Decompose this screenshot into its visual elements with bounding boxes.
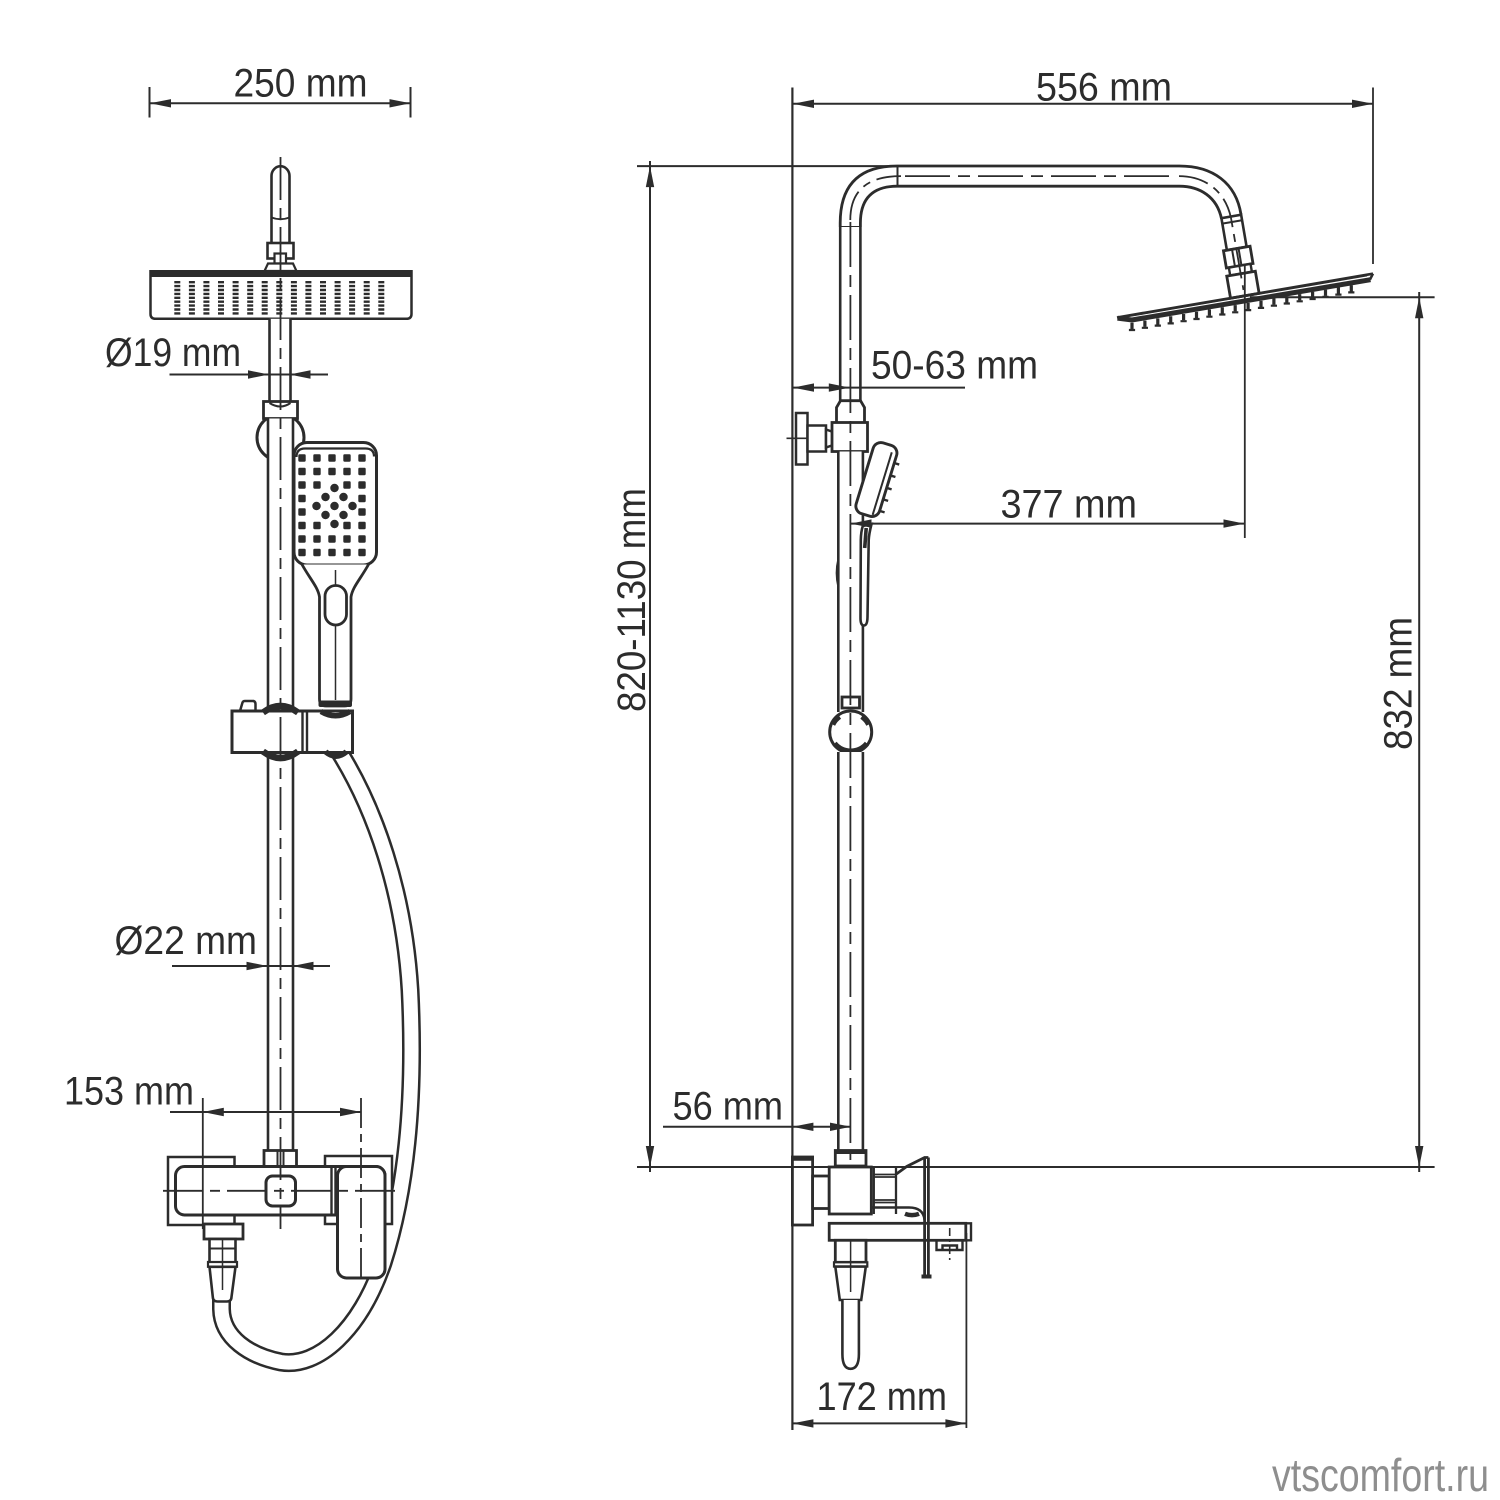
svg-text:250 mm: 250 mm	[234, 62, 368, 106]
svg-text:172 mm: 172 mm	[817, 1375, 948, 1419]
svg-text:377 mm: 377 mm	[1001, 483, 1138, 527]
svg-text:556 mm: 556 mm	[1036, 66, 1172, 110]
svg-text:Ø19 mm: Ø19 mm	[105, 331, 241, 375]
svg-text:vtscomfort.ru: vtscomfort.ru	[1272, 1449, 1489, 1500]
svg-text:56 mm: 56 mm	[673, 1085, 784, 1129]
svg-text:832 mm: 832 mm	[1377, 617, 1421, 750]
svg-text:153 mm: 153 mm	[64, 1070, 194, 1114]
svg-text:50-63 mm: 50-63 mm	[871, 344, 1038, 388]
svg-text:Ø22 mm: Ø22 mm	[115, 919, 258, 963]
svg-text:820-1130 mm: 820-1130 mm	[610, 488, 654, 712]
